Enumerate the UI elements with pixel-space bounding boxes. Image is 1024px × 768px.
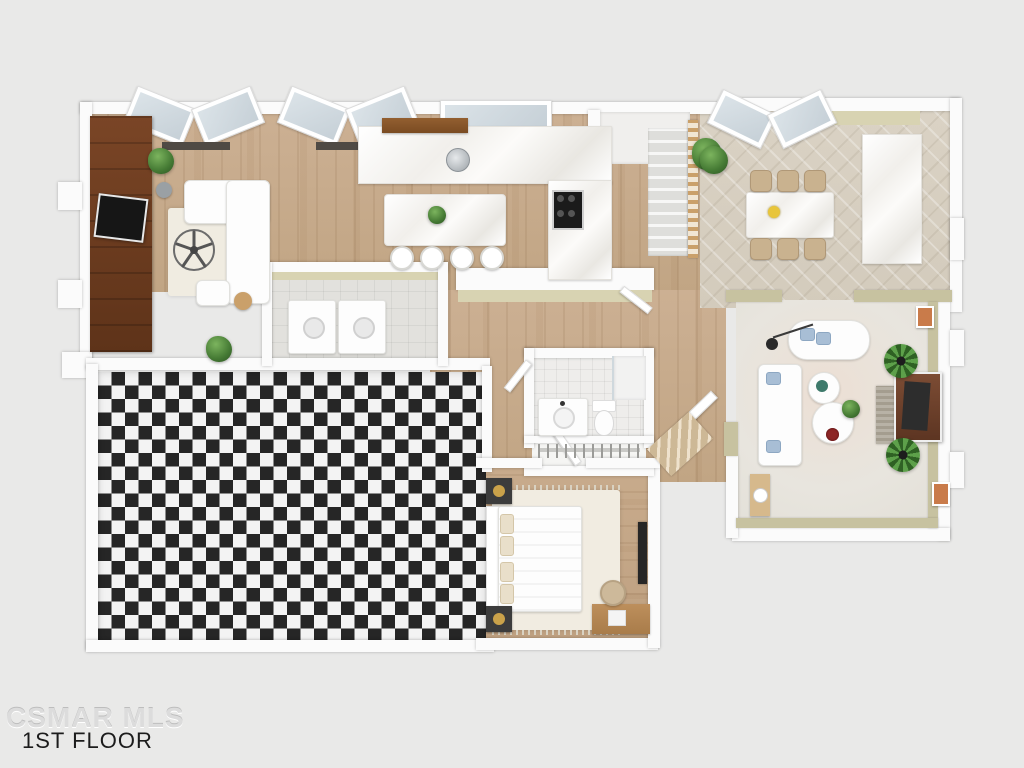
island-plant [428, 206, 446, 224]
dining-chair [750, 170, 772, 192]
checkered-room-right-wall [482, 366, 492, 472]
washer [288, 300, 336, 354]
kitchen-sink [446, 148, 470, 172]
kitchen-stool [450, 246, 474, 270]
right-window-tab-3 [950, 452, 964, 488]
dining-plant [700, 146, 728, 174]
right-window-tab-1 [950, 218, 964, 260]
red-bowl [826, 428, 839, 441]
sofa-pillow [766, 372, 781, 385]
bed-pillow [500, 514, 514, 534]
bedroom-top-wall-left [476, 458, 542, 468]
kitchen-island [384, 194, 506, 246]
desk-chair [600, 580, 626, 606]
dining-chair [804, 238, 826, 260]
laundry-right-wall [438, 262, 448, 366]
checkered-room-top-wall [86, 358, 490, 370]
laundry-top-wall [262, 262, 448, 272]
dining-centerpiece [768, 206, 780, 218]
ceiling-fan-icon [172, 228, 216, 272]
shower [612, 356, 646, 400]
family-tv-screen [901, 381, 930, 431]
dining-chair [804, 170, 826, 192]
right-window-tab-2 [950, 330, 964, 366]
dining-chair [750, 238, 772, 260]
toilet-bowl [594, 410, 614, 436]
kitchen-wood-shelf [382, 118, 468, 133]
bed-pillow [500, 562, 514, 582]
left-window-tab-2 [58, 280, 82, 308]
stone-hearth-rug [876, 386, 894, 444]
dryer [338, 300, 386, 354]
nightstand-bottom [486, 606, 512, 632]
bathroom-closet-divider [524, 436, 654, 443]
palm-plant-top [884, 344, 918, 378]
dining-chair [777, 170, 799, 192]
checkered-room-bottom-wall [86, 640, 494, 652]
dining-chair [777, 238, 799, 260]
closet-hangers [538, 444, 640, 458]
living-tv [94, 193, 149, 243]
bedroom-wall-tv [638, 522, 647, 584]
laundry-khaki-band [264, 272, 446, 280]
wall-art-bottom [932, 482, 950, 506]
sofa-pillow [766, 440, 781, 453]
kitchen-stool [390, 246, 414, 270]
dining-family-divider-right [854, 290, 952, 302]
palm-plant-bottom [886, 438, 920, 472]
bathroom-vanity [538, 398, 588, 436]
bed-pillow [500, 584, 514, 604]
entry-khaki-panel [724, 422, 738, 456]
coffee-table-plant-2 [842, 400, 860, 418]
kitchen-stool [420, 246, 444, 270]
dining-table [746, 192, 834, 238]
kitchen-counter [358, 126, 612, 184]
left-window-tab-1 [58, 182, 82, 210]
living-window-sill [162, 142, 230, 150]
dining-family-divider-left [726, 290, 782, 302]
floor-label: 1ST FLOOR [22, 728, 153, 754]
nightstand-top [486, 478, 512, 504]
daybed-pillow [800, 328, 815, 341]
daybed-pillow [816, 332, 831, 345]
bed-pillow [500, 536, 514, 556]
living-lamp [156, 182, 172, 198]
dining-buffet-counter [862, 134, 922, 264]
arc-lamp-base [766, 338, 778, 350]
kitchen-stove [552, 190, 584, 230]
wall-art-top [916, 306, 934, 328]
sectional-sofa-chaise [226, 180, 270, 304]
console-lamp [753, 488, 768, 503]
living-side-table [234, 292, 252, 310]
living-plant-bottom [206, 336, 232, 362]
checkered-room-left-wall [86, 364, 98, 650]
coffee-table-plant [816, 380, 828, 392]
checkered-room-floor [98, 372, 486, 644]
bedroom-desk [592, 604, 650, 634]
staircase-treads [648, 128, 688, 256]
kitchen-stool [480, 246, 504, 270]
family-khaki-bottom-face [736, 518, 938, 528]
family-tv-frame [894, 372, 942, 442]
living-ottoman [196, 280, 230, 306]
bedroom-bottom-wall [476, 638, 658, 650]
floorplan-canvas: CSMAR MLS 1ST FLOOR [0, 0, 1024, 768]
family-bottom-wall [732, 528, 950, 541]
bedroom-top-wall-right [586, 458, 660, 468]
dining-right-wall [950, 98, 962, 312]
living-plant-top [148, 148, 174, 174]
